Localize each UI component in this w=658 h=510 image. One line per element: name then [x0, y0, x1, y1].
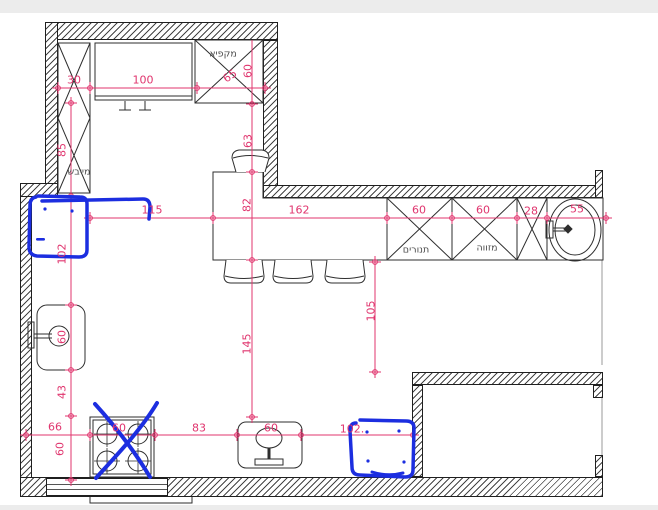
dim-83: 83 — [192, 423, 206, 434]
dim-145: 145 — [242, 334, 253, 355]
bottom-wall-outer-step — [90, 497, 192, 503]
dim-55: 55 — [570, 204, 584, 215]
floor-plan-canvas: 3010065606385115821626060285510260431451… — [0, 0, 658, 510]
dim-60-sink-l: 60 — [57, 330, 68, 344]
dim-102-bottom: 102. — [340, 424, 365, 435]
annotation-box-right-tail — [372, 472, 403, 475]
dim-60-stove: 60 — [112, 423, 126, 434]
label-freezer: מקפיא — [209, 49, 237, 59]
dim-60-ovens: 60 — [412, 205, 426, 216]
label-dryer: מייבש — [68, 167, 91, 177]
dim-28: 28 — [524, 206, 538, 217]
dim-60-depth: 60 — [55, 442, 66, 456]
dim-162: 162 — [289, 205, 310, 216]
dim-102-left: 102 — [57, 244, 68, 265]
stools-bottom — [224, 260, 365, 283]
dim-43: 43 — [57, 385, 68, 399]
dim-60-freezer: 60 — [243, 64, 254, 78]
dim-60-sink-b: 60 — [264, 423, 278, 434]
dim-60-pantry: 60 — [476, 205, 490, 216]
left-sink-faucet — [28, 322, 34, 348]
dim-82: 82 — [242, 198, 253, 212]
label-pantry: מזווה — [476, 243, 497, 253]
dim-85: 85 — [57, 143, 68, 157]
dim-30: 30 — [67, 75, 81, 86]
annotation-line-top — [42, 199, 150, 219]
dim-115: 115 — [142, 205, 163, 216]
dim-63: 63 — [243, 134, 254, 148]
plan-linework — [0, 0, 658, 510]
label-ovens: תנורים — [403, 245, 429, 255]
dim-66: 66 — [48, 422, 62, 433]
dim-100: 100 — [133, 75, 154, 86]
dim-105: 105 — [366, 301, 377, 322]
stool-top — [232, 150, 269, 172]
